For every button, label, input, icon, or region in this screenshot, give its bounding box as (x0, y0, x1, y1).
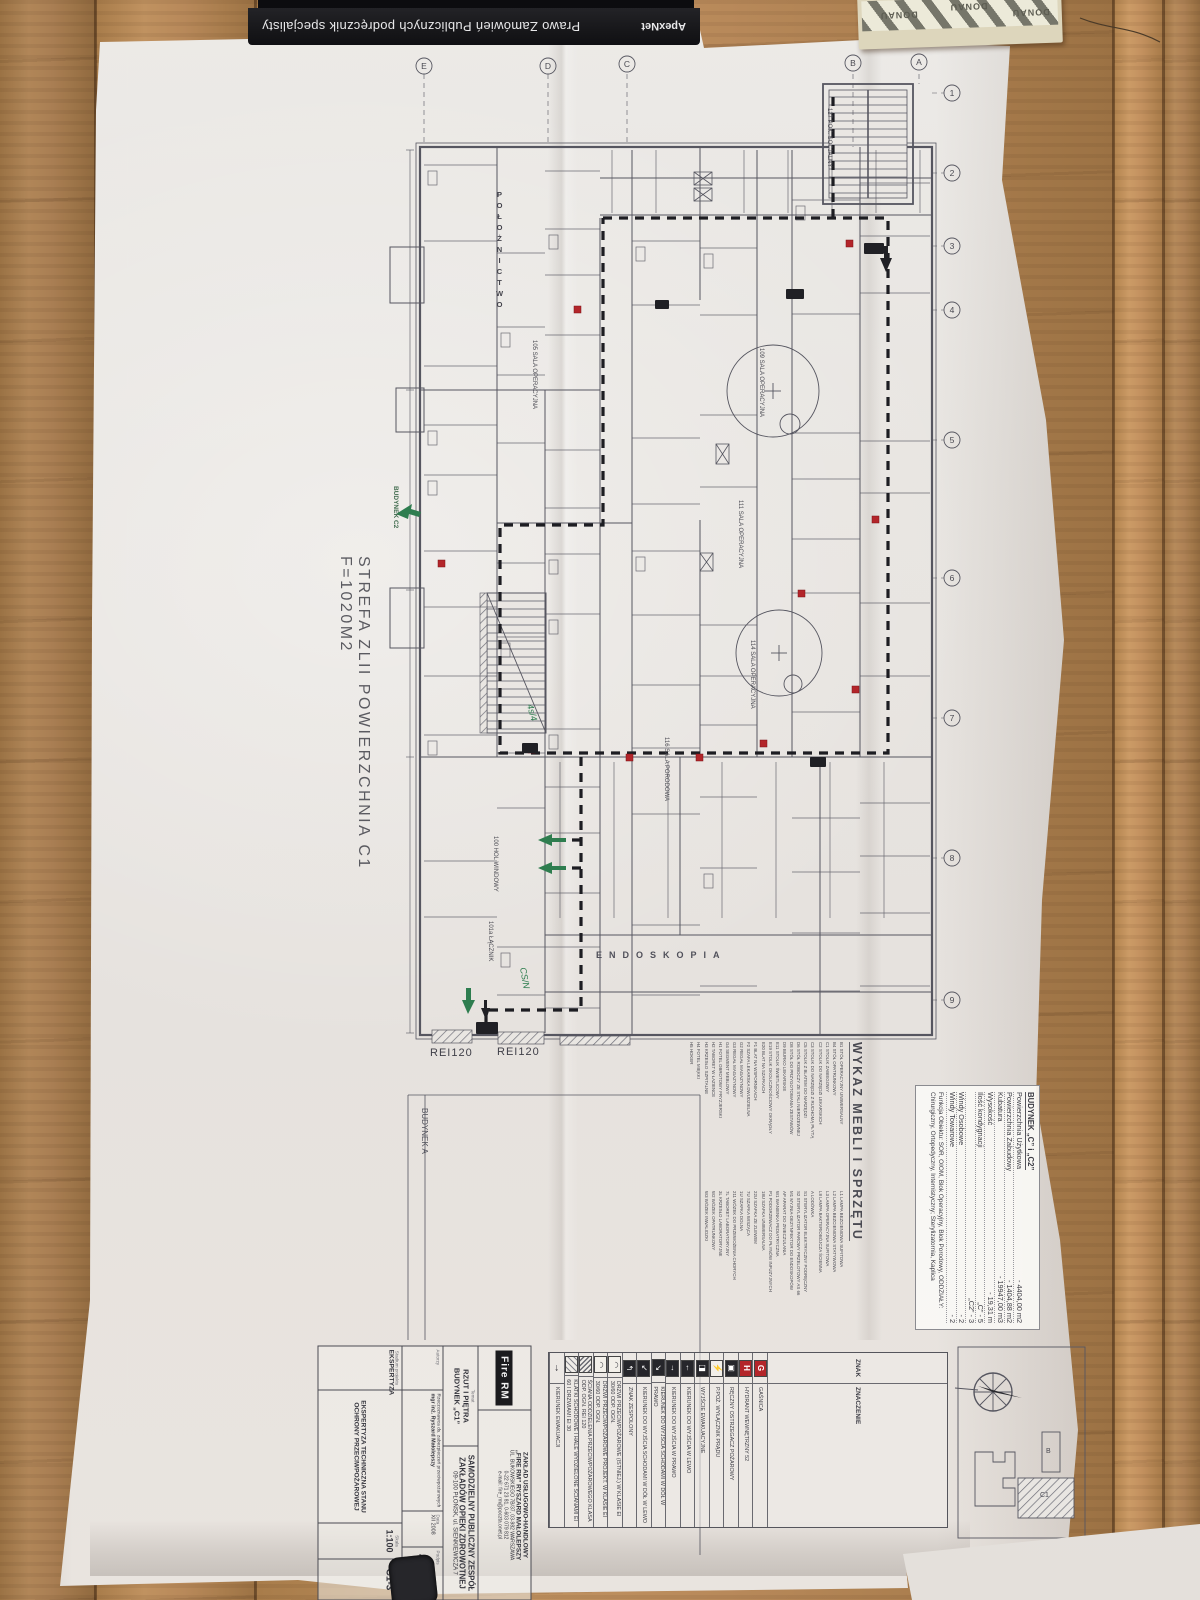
building-c2-label: BUDYNEK C2 (392, 486, 399, 546)
furniture-item: B1 STÓŁ OPERACYJNY UNIWERSALNY (838, 1042, 845, 1181)
info-row: Wysokość- 19,31 m (984, 1092, 994, 1323)
furniture-item: L8 LAMPA BAKTERIOBÓJCZA ŚCIENNA (817, 1191, 824, 1330)
svg-text:9: 9 (950, 995, 955, 1005)
info-row: Powierzchnia Zabudowy- 1404,88 m2 (1004, 1092, 1014, 1323)
furniture-item: D9 BIURKO LEKARSKIE (781, 1042, 788, 1181)
legend-symbol-icon: ↰ (623, 1360, 636, 1377)
legend-symbol-icon: ↘ (652, 1359, 665, 1376)
furniture-item: A LODÓWKA (809, 1191, 816, 1330)
site-label-c1: C1 (1040, 1492, 1049, 1499)
compass-icon (955, 1373, 1022, 1411)
fire-safety-legend: ZNAK ZNACZENIE G GAŚNICA H HYDRANT WEWNĘ… (548, 1352, 948, 1528)
svg-text:E: E (421, 61, 427, 71)
furniture-item: C2 STOLIK DO NARZĘDZI LEKARSKICH (817, 1042, 824, 1181)
furniture-item: W3 WÓZEK INWALIDZKI (703, 1191, 710, 1330)
furniture-col2: L1 LAMPA BEZCIENIOWA SUFITOWAL2 LAMPA BE… (688, 1191, 845, 1330)
legend-row: ← KIERUNEK DO WYJŚCIA W LEWO (680, 1353, 695, 1527)
info-row: „C2” - 3 (965, 1092, 975, 1323)
furniture-list: WYKAZ MEBLI I SPRZĘTU B1 STÓŁ OPERACYJNY… (648, 1042, 866, 1330)
info-table-title: BUDYNEK „C” i „C2” (1025, 1092, 1035, 1170)
svg-text:4: 4 (950, 305, 955, 315)
furniture-item: G2 REGAŁ MAGAZYNOWY (738, 1042, 745, 1181)
legend-row: ↘ KIERUNEK DO WYJŚCIA SCHODAMI W DÓŁ W P… (651, 1353, 666, 1527)
book-brand: ApexNet (641, 21, 686, 33)
svg-text:105 SALA OPERACYJNA: 105 SALA OPERACYJNA (531, 340, 537, 409)
svg-text:8: 8 (950, 853, 955, 863)
info-row: Windy Osobowe- 2 (956, 1092, 966, 1323)
furniture-item: H5 HOKER (688, 1042, 695, 1181)
legend-symbol-icon: ◠ (594, 1356, 607, 1373)
furniture-item: H4 FOTEL MIĘKKI (695, 1042, 702, 1181)
donau-pad: DONAU DONAU DONAU (857, 0, 1063, 50)
legend-symbol-icon: ← (681, 1360, 694, 1377)
legend-symbol-icon: H (739, 1360, 752, 1377)
legend-row: ▣ RĘCZNY OSTRZEGACZ POŻAROWY (723, 1353, 738, 1527)
evac-dashed-path (486, 92, 888, 1030)
svg-text:111 SALA OPERACYJNA: 111 SALA OPERACYJNA (737, 500, 743, 568)
legend-label: DRZWI PRZECIWPOŻAROWE PROJEKT. W KLASIE … (593, 1378, 608, 1527)
svg-text:2: 2 (950, 168, 955, 178)
svg-text:114 SALA OPERACYJNA: 114 SALA OPERACYJNA (749, 640, 755, 709)
info-row: Ilość kondygnacji„C” - 5 (975, 1092, 985, 1323)
svg-text:5: 5 (950, 435, 955, 445)
furniture-item: E11 STOLIK ŚWIETLICOWY (774, 1042, 781, 1181)
legend-label: KIERUNEK DO WYJŚCIA SCHODAMI W DÓŁ W PRA… (651, 1383, 666, 1527)
legend-symbol-icon: ▣ (725, 1360, 738, 1377)
furniture-item: L1 LAMPA BEZCIENIOWA SUFITOWA (838, 1191, 845, 1330)
legend-label: KIERUNEK EWAKUACJI (553, 1384, 561, 1450)
svg-text:6: 6 (950, 573, 955, 583)
info-row: Windy Towarowe- 2 (946, 1092, 956, 1323)
legend-symbol-icon: ◨ (696, 1360, 709, 1377)
svg-text:100 HOL WINDOWY: 100 HOL WINDOWY (492, 836, 498, 892)
dark-object (388, 1554, 439, 1600)
furniture-item: B4 STÓŁ OPATRUNKOWY (831, 1042, 838, 1181)
dept-label-endoskopia: ENDOSKOPIA (596, 950, 727, 960)
elevator-symbols (694, 172, 729, 571)
legend-symbol-icon: ▨ (565, 1356, 578, 1373)
furniture-item: C3 STOLIK DO NARZĘDZI Z RUCHOMĄ PŁYTĄ (809, 1042, 816, 1181)
building-function-line: Funkcja Obiektu: SOR, OIOM, Blok Operacy… (928, 1092, 944, 1323)
legend-row: → KIERUNEK DO WYJŚCIA W PRAWO (665, 1353, 680, 1527)
furniture-item: H3 KRZESŁO SZPITALNE (703, 1042, 710, 1181)
legend-label: GAŚNICA (756, 1384, 764, 1414)
legend-row: H HYDRANT WEWNĘTRZNY 52 (738, 1353, 753, 1527)
investor: SAMODZIELNY PUBLICZNY ZESPÓŁ (467, 1450, 476, 1597)
furniture-item: 7L TABORET LABORATORYJNY (724, 1191, 731, 1330)
building-info-table: BUDYNEK „C” i „C2” Powierzchnia Użytkowa… (915, 1085, 1040, 1330)
info-row: Powierzchnia Użytkowa- 4404,00 m2 (1013, 1092, 1023, 1323)
legend-label: RĘCZNY OSTRZEGACZ POŻAROWY (727, 1384, 735, 1483)
svg-text:A: A (916, 57, 922, 67)
furniture-item: E19 STOLIK OKOLICZNOŚCIOWY OKRĄGŁY (767, 1042, 774, 1181)
furniture-item: 18U SZAFKA UNIWERSALNA (760, 1191, 767, 1330)
drawing-subject: RZUT I PIĘTRA (462, 1350, 471, 1443)
furniture-col1: B1 STÓŁ OPERACYJNY UNIWERSALNYB4 STÓŁ OP… (688, 1042, 845, 1181)
legend-symbol-icon: ⚡ (710, 1360, 723, 1377)
furniture-item: S2 STERYLIZATOR PAROWY PRZELOTOWY AS 66 (795, 1191, 802, 1330)
legend-label: KIERUNEK DO WYJŚCIA W LEWO (683, 1384, 691, 1476)
furniture-item: D8 STÓŁ DO PRZYGOTOWANIA ZESTAWÓW (788, 1042, 795, 1181)
svg-text:C: C (624, 59, 630, 69)
furniture-item: C5 STOLIK Z BLATEM DO NARZĘDZI (802, 1042, 809, 1181)
dept-label-poloznictwo: POŁOŻNICTWO (495, 190, 504, 300)
legend-row: ◠ DRZWI PRZECIWPOŻAROWE PROJEKT. W KLASI… (593, 1353, 608, 1527)
firerm-logo: Fire RM (496, 1350, 513, 1406)
legend-row: ▨ KLATKI SCHODOWE I HALE WYDZIELONE ŚCIA… (564, 1353, 579, 1527)
info-row: Kubatura- 19947,00 m3 (994, 1092, 1004, 1323)
legend-row: ▨ ŚCIANA ODDZIELENIA PRZECIWPOŻAROWEGO K… (578, 1353, 593, 1527)
legend-row: ↰ ZNAK ZESPOLONY (622, 1353, 637, 1527)
rei120-label: REI120 (497, 1046, 540, 1058)
donau-logo: DONAU (880, 9, 918, 20)
furniture-item: AP APARAT DO ZNIECZULANIA (781, 1191, 788, 1330)
svg-text:109 SALA OPERACYJNA: 109 SALA OPERACYJNA (758, 348, 764, 417)
legend-row: ⚡ P.POŻ. WYŁĄCZNIK PRĄDU (709, 1353, 724, 1527)
site-label-b: B (1046, 1448, 1051, 1455)
furniture-item: P1 PODGRZEWACZ DO PŁYNÓW INFUZYJNYCH (767, 1191, 774, 1330)
furniture-item: C1 STOLIK ZABIEGOWY (824, 1042, 831, 1181)
legend-label: KLATKI SCHODOWE I HALE WYDZIELONE ŚCIANA… (564, 1376, 579, 1527)
room-labels: 105 SALA OPERACYJNA 109 SALA OPERACYJNA … (487, 108, 832, 961)
legend-label: DRZWI PRZECIWPOŻAROWE (ISTNIEJ.) W KLASI… (607, 1378, 622, 1527)
svg-text:1: 1 (950, 88, 955, 98)
furniture-item: 1U SZAFKA DOLNA (738, 1191, 745, 1330)
legend-row: → KIERUNEK EWAKUACJI (549, 1353, 564, 1527)
rei120-label: REI120 (430, 1047, 473, 1059)
furniture-item: 7U SZAFKA WISZĄCA (745, 1191, 752, 1330)
legend-symbol-icon: ◠ (608, 1356, 621, 1373)
legend-symbol-icon: ▨ (579, 1356, 592, 1373)
furniture-item: E20 BLAT NA SZAFKACH (760, 1042, 767, 1181)
furniture-item: G3 REGAŁ MAGAZYNOWY (731, 1042, 738, 1181)
svg-text:3: 3 (950, 241, 955, 251)
svg-text:101a ŁĄCZNIK: 101a ŁĄCZNIK (487, 921, 493, 961)
furniture-item: F1 BLAT NA WSPORNIKACH (752, 1042, 759, 1181)
scale-value: 1:100 (385, 1527, 395, 1556)
legend-symbol-icon: G (754, 1360, 767, 1377)
doc-title: EKSPERTYZA TECHNICZNA STANU OCHRONY PRZE… (353, 1394, 367, 1520)
donau-logo: DONAU (949, 1, 987, 12)
furniture-item: W2 WÓZEK OPATRUNKOWY (710, 1191, 717, 1330)
svg-text:7: 7 (950, 713, 955, 723)
furniture-item: 3L KRZESŁO LABORATORYJNE (717, 1191, 724, 1330)
furniture-item: H1 FOTEL OBROTOWY FRYZJERSKI (717, 1042, 724, 1181)
donau-tape: DONAU DONAU DONAU (861, 0, 1058, 31)
furniture-item: 22U SZAFKA ZE ZLEWEM (752, 1191, 759, 1330)
furniture-title: WYKAZ MEBLI I SPRZĘTU (849, 1042, 864, 1241)
legend-symbol-icon: ↙ (637, 1360, 650, 1377)
legend-label: KIERUNEK DO WYJŚCIA W PRAWO (669, 1384, 677, 1481)
furniture-item: S1 STERYLIZATOR ELEKTRYCZNY PODRĘCZNY (802, 1191, 809, 1330)
green-evac-arrows (396, 504, 566, 1014)
book-title: Prawo Zamówień Publicznych podręcznik sp… (262, 19, 580, 34)
furniture-item: F2 SZAFA LEKARSKA DWUDZIELNA (745, 1042, 752, 1181)
svg-text:127 POK. SOCJALNY: 127 POK. SOCJALNY (826, 108, 832, 167)
legend-row: G GAŚNICA (752, 1353, 767, 1527)
dimension-line (406, 150, 414, 1033)
svg-text:D: D (545, 61, 551, 71)
legend-header: ZNAK ZNACZENIE (767, 1353, 947, 1527)
furniture-item: L2 LAMPA BEZCIENIOWA STATYWOWA (831, 1191, 838, 1330)
black-arrow-down (481, 1000, 490, 1020)
book-spine: ApexNet Prawo Zamówień Publicznych podrę… (248, 8, 700, 45)
legend-label: ŚCIANA ODDZIELENIA PRZECIWPOŻAROWEGO KLA… (578, 1377, 593, 1527)
furniture-item: G4 SEGMENT MEBLOWY (724, 1042, 731, 1181)
zone-label: STREFA ZLII POWIERZCHNIA C1 F=1020M2 (336, 556, 372, 956)
donau-logo: DONAU (1012, 7, 1050, 18)
legend-symbol-icon: → (667, 1360, 680, 1377)
furniture-item: D6 STÓŁ ROBOCZY ZE STALI NIERDZEWNEJ (795, 1042, 802, 1181)
svg-text:B: B (850, 58, 856, 68)
svg-text:CS/N: CS/N (518, 967, 532, 990)
furniture-item: L3 LAMPA OPERACYJNA SUFITOWA (824, 1191, 831, 1330)
legend-label: WYJŚCIE EWAKUACYJNE (698, 1384, 706, 1456)
thread (1080, 18, 1160, 42)
legend-label: ZNAK ZESPOLONY (625, 1384, 633, 1439)
legend-symbol-icon: → (551, 1361, 562, 1376)
legend-row: ◨ WYJŚCIE EWAKUACYJNE (694, 1353, 709, 1527)
svg-text:116 SALA PORODOWA: 116 SALA PORODOWA (663, 737, 669, 801)
furniture-item: H2 TABORET W ŁAZIENCE (710, 1042, 717, 1181)
outer-walls (390, 84, 936, 1039)
building-a-label: BUDYNEK A (420, 1108, 429, 1188)
legend-label: P.POŻ. WYŁĄCZNIK PRĄDU (712, 1384, 720, 1460)
legend-row: ◠ DRZWI PRZECIWPOŻAROWE (ISTNIEJ.) W KLA… (607, 1353, 622, 1527)
furniture-item: W1 WANIENKA PEDIATRYCZNA (774, 1191, 781, 1330)
furniture-item: M1 MYJNIA-DEZYNFEKTOR DO ENDOSKOPÓW (788, 1191, 795, 1330)
legend-label: HYDRANT WEWNĘTRZNY 52 (741, 1384, 749, 1464)
photo-of-floor-plan: { "books": { "spine_title": "Prawo Zamów… (0, 0, 1200, 1600)
site-inset (955, 1347, 1085, 1538)
legend-label: KIERUNEK DO WYJŚCIA SCHODAMI W DÓŁ W LEW… (640, 1384, 648, 1526)
furniture-item: 211 WÓZEK DO PRZEWOŻENIA CHORYCH (731, 1191, 738, 1330)
legend-row: ↙ KIERUNEK DO WYJŚCIA SCHODAMI W DÓŁ W L… (636, 1353, 651, 1527)
